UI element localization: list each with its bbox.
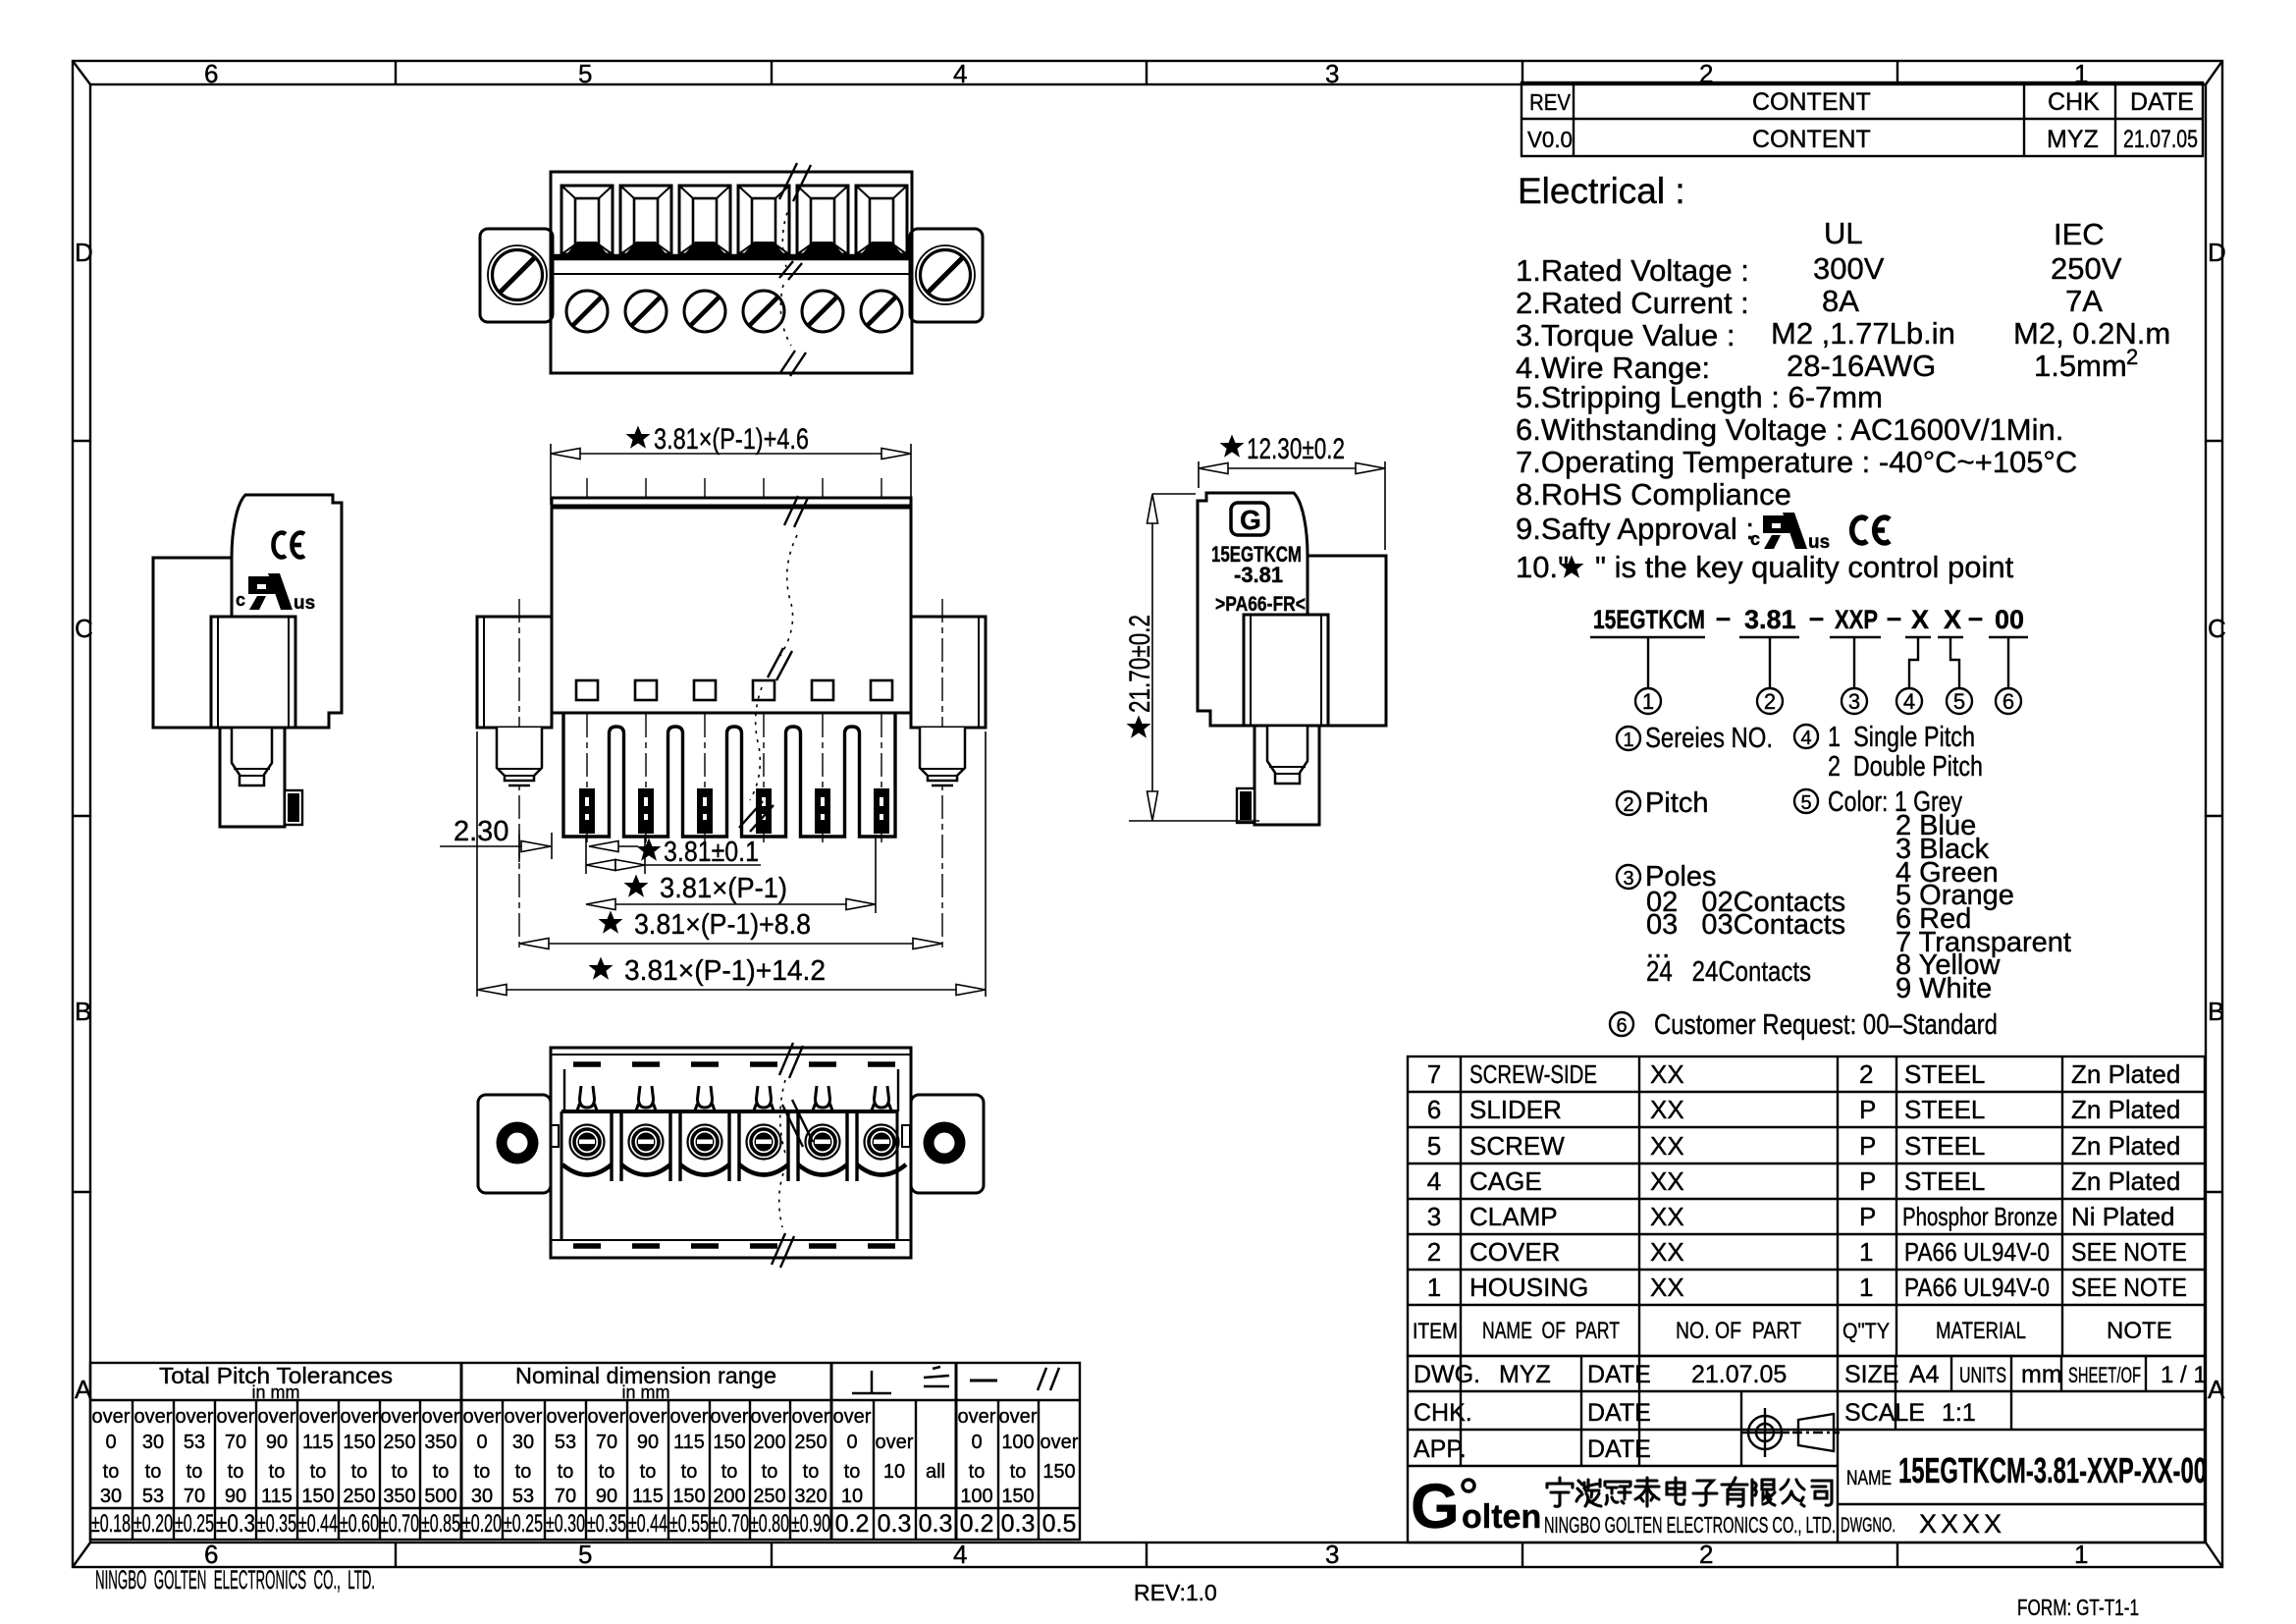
svg-text:Zn Plated: Zn Plated (2071, 1166, 2180, 1196)
svg-text:UNITS: UNITS (1959, 1363, 2006, 1387)
svg-text:21.07.05: 21.07.05 (2123, 126, 2198, 153)
svg-text:90: 90 (266, 1432, 288, 1453)
svg-text:NINGBO GOLTEN ELECTRONICS CO.,: NINGBO GOLTEN ELECTRONICS CO., LTD. (1544, 1512, 1836, 1538)
svg-text:X: X (1911, 605, 1929, 634)
svg-text:SCREW: SCREW (1469, 1131, 1565, 1161)
svg-text:200: 200 (753, 1432, 785, 1453)
svg-text:XX: XX (1650, 1237, 1684, 1267)
svg-text:over: over (711, 1406, 749, 1428)
svg-text:STEEL: STEEL (1904, 1095, 1985, 1124)
svg-text:70: 70 (184, 1486, 205, 1507)
svg-text:-3.81: -3.81 (1234, 563, 1283, 587)
svg-text:2: 2 (1699, 59, 1713, 88)
svg-text:30: 30 (512, 1432, 534, 1453)
svg-text:DWG.: DWG. (1414, 1361, 1480, 1388)
svg-text:2: 2 (1427, 1237, 1441, 1267)
svg-text:500: 500 (424, 1486, 456, 1507)
svg-text:Electrical :: Electrical : (1518, 171, 1685, 211)
svg-text:5: 5 (578, 1540, 592, 1569)
svg-text:SEE NOTE: SEE NOTE (2071, 1272, 2187, 1302)
svg-text:XX: XX (1650, 1272, 1684, 1302)
svg-text:±0.44: ±0.44 (298, 1510, 338, 1538)
svg-text:over: over (958, 1406, 996, 1428)
svg-text:0: 0 (105, 1432, 116, 1453)
svg-text:3: 3 (1325, 1540, 1339, 1569)
svg-text:3.Torque Value :: 3.Torque Value : (1516, 318, 1735, 352)
svg-text:to: to (269, 1461, 286, 1483)
svg-text:over: over (217, 1406, 255, 1428)
svg-text:90: 90 (225, 1486, 246, 1507)
svg-text:to: to (228, 1461, 244, 1483)
svg-text:6: 6 (1616, 1015, 1627, 1037)
svg-text:DATE: DATE (1587, 1399, 1651, 1427)
svg-text:over: over (547, 1406, 585, 1428)
svg-text:150: 150 (1042, 1461, 1075, 1483)
svg-text:STEEL: STEEL (1904, 1166, 1985, 1196)
svg-text:over: over (670, 1406, 709, 1428)
svg-text:0: 0 (846, 1432, 857, 1453)
svg-text:115: 115 (673, 1432, 705, 1453)
svg-text:70: 70 (596, 1432, 617, 1453)
svg-text:REV:1.0: REV:1.0 (1134, 1580, 1217, 1605)
svg-text:0.2: 0.2 (835, 1510, 870, 1538)
svg-text:0: 0 (476, 1432, 487, 1453)
svg-text:over: over (588, 1406, 626, 1428)
svg-text:–: – (1809, 603, 1824, 632)
svg-text:DATE: DATE (1587, 1435, 1651, 1463)
svg-text:–: – (1968, 603, 1983, 632)
svg-text:UL: UL (1824, 216, 1863, 250)
svg-text:P: P (1859, 1166, 1876, 1196)
svg-text:to: to (599, 1461, 615, 1483)
svg-text:to: to (474, 1461, 491, 1483)
svg-text:±0.55: ±0.55 (669, 1510, 709, 1538)
svg-text:10.": 10." (1516, 550, 1569, 584)
svg-text:2: 2 (1623, 794, 1633, 816)
svg-text:1: 1 (1623, 730, 1633, 751)
svg-text:0.3: 0.3 (919, 1510, 953, 1538)
svg-text:NAME: NAME (1846, 1467, 1892, 1489)
svg-text:to: to (640, 1461, 657, 1483)
svg-text:NO. OF PART: NO. OF PART (1676, 1318, 1801, 1344)
svg-text:B: B (2208, 997, 2224, 1026)
svg-text:X: X (1944, 605, 1961, 634)
svg-text:–: – (1887, 603, 1901, 632)
svg-text:3: 3 (1427, 1202, 1441, 1231)
svg-text:to: to (558, 1461, 574, 1483)
svg-text:6.Withstanding Voltage : AC160: 6.Withstanding Voltage : AC1600V/1Min. (1516, 412, 2063, 447)
svg-text:±0.18: ±0.18 (91, 1510, 131, 1538)
svg-text:HOUSING: HOUSING (1469, 1272, 1588, 1302)
svg-text:SCALE: SCALE (1844, 1399, 1925, 1427)
svg-text:DATE: DATE (1587, 1361, 1651, 1388)
svg-text:COVER: COVER (1469, 1237, 1560, 1267)
svg-text:70: 70 (225, 1432, 246, 1453)
svg-text:350: 350 (383, 1486, 415, 1507)
svg-text:D: D (75, 238, 93, 267)
svg-text:0.5: 0.5 (1042, 1510, 1077, 1538)
svg-text:APP.: APP. (1414, 1435, 1467, 1463)
svg-text:1.5mm: 1.5mm (2034, 349, 2127, 383)
svg-text:to: to (515, 1461, 532, 1483)
svg-text:Zn Plated: Zn Plated (2071, 1131, 2180, 1161)
svg-text:CONTENT: CONTENT (1752, 88, 1871, 116)
svg-text:115: 115 (302, 1432, 334, 1453)
svg-text:100: 100 (1001, 1432, 1034, 1453)
svg-text:±0.60: ±0.60 (340, 1510, 379, 1538)
svg-text:3.81×(P-1)+8.8: 3.81×(P-1)+8.8 (634, 909, 811, 941)
svg-text:>PA66-FR<: >PA66-FR< (1215, 593, 1306, 616)
svg-text:300V: 300V (1813, 251, 1885, 286)
svg-text:CHK: CHK (2048, 88, 2100, 116)
svg-text:±0.20: ±0.20 (462, 1510, 502, 1538)
svg-text:0: 0 (971, 1432, 982, 1453)
svg-text:" is the key quality control p: " is the key quality control point (1595, 550, 2014, 584)
svg-text:15EGTKCM: 15EGTKCM (1593, 605, 1705, 634)
svg-text:150: 150 (713, 1432, 745, 1453)
svg-text:53: 53 (184, 1432, 205, 1453)
svg-text:B: B (75, 997, 91, 1026)
svg-text:over: over (999, 1406, 1038, 1428)
svg-text:1.Rated Voltage :: 1.Rated Voltage : (1516, 253, 1749, 288)
svg-text:15EGTKCM-3.81-XXP-XX-00: 15EGTKCM-3.81-XXP-XX-00 (1898, 1450, 2207, 1490)
svg-text:over: over (381, 1406, 419, 1428)
svg-text:3.81×(P-1): 3.81×(P-1) (660, 873, 787, 904)
svg-text:P: P (1859, 1202, 1876, 1231)
svg-text:SEE NOTE: SEE NOTE (2071, 1237, 2187, 1267)
svg-text:over: over (1041, 1432, 1079, 1453)
svg-text:9 White: 9 White (1896, 973, 1992, 1004)
svg-text:100: 100 (960, 1486, 992, 1507)
svg-text:P: P (1859, 1131, 1876, 1161)
svg-text:5: 5 (1800, 792, 1811, 814)
svg-text:over: over (422, 1406, 460, 1428)
svg-text:1 / 1: 1 / 1 (2161, 1362, 2207, 1388)
svg-text:2 Double Pitch: 2 Double Pitch (1828, 751, 1983, 783)
svg-text:250: 250 (794, 1432, 827, 1453)
svg-text:1: 1 (1859, 1237, 1873, 1267)
svg-text:over: over (833, 1406, 872, 1428)
svg-text:±0.3: ±0.3 (216, 1510, 255, 1538)
svg-text:XX: XX (1650, 1059, 1684, 1089)
svg-text:over: over (258, 1406, 296, 1428)
svg-text:over: over (792, 1406, 830, 1428)
svg-text:in mm: in mm (252, 1382, 300, 1402)
svg-text:7A: 7A (2065, 284, 2103, 318)
svg-text:115: 115 (632, 1486, 664, 1507)
svg-text:–: – (1716, 603, 1731, 632)
svg-text:1: 1 (1859, 1272, 1873, 1302)
svg-text:3.81±0.1: 3.81±0.1 (664, 837, 759, 868)
svg-text:2: 2 (1859, 1059, 1873, 1089)
svg-text:250: 250 (343, 1486, 375, 1507)
svg-text:24 24Contacts: 24 24Contacts (1646, 956, 1811, 988)
svg-text:70: 70 (555, 1486, 576, 1507)
svg-text:30: 30 (471, 1486, 493, 1507)
svg-text:Zn Plated: Zn Plated (2071, 1059, 2180, 1089)
svg-text:to: to (187, 1461, 203, 1483)
svg-text:NAME OF PART: NAME OF PART (1482, 1318, 1620, 1344)
svg-text:SLIDER: SLIDER (1469, 1095, 1562, 1124)
svg-text:NINGBO GOLTEN ELECTRONICS C: NINGBO GOLTEN ELECTRONICS CO., LTD. (95, 1565, 375, 1595)
svg-text:320: 320 (794, 1486, 827, 1507)
svg-text:30: 30 (100, 1486, 122, 1507)
svg-text:±0.20: ±0.20 (133, 1510, 173, 1538)
svg-text:4: 4 (953, 59, 967, 88)
svg-text:to: to (103, 1461, 120, 1483)
svg-text:7: 7 (1427, 1059, 1441, 1089)
svg-text:2: 2 (1699, 1540, 1713, 1569)
svg-text:G: G (1240, 505, 1261, 535)
svg-text:0.2: 0.2 (960, 1510, 994, 1538)
svg-text:±0.85: ±0.85 (421, 1510, 460, 1538)
svg-text:XXP: XXP (1835, 605, 1878, 634)
svg-text:to: to (1010, 1461, 1027, 1483)
svg-text:IEC: IEC (2054, 217, 2105, 251)
svg-text:over: over (751, 1406, 789, 1428)
svg-text:53: 53 (142, 1486, 164, 1507)
svg-text:350: 350 (424, 1432, 456, 1453)
svg-text:8.RoHS Compliance: 8.RoHS Compliance (1516, 477, 1791, 512)
svg-text:olten: olten (1462, 1498, 1541, 1536)
svg-text:CONTENT: CONTENT (1752, 126, 1871, 153)
svg-text:±0.90: ±0.90 (791, 1510, 830, 1538)
svg-text:0.3: 0.3 (878, 1510, 912, 1538)
svg-text:Ni Plated: Ni Plated (2071, 1202, 2175, 1231)
svg-text:6: 6 (204, 59, 218, 88)
svg-text:Q"TY: Q"TY (1842, 1319, 1890, 1343)
svg-text:4: 4 (1800, 728, 1811, 749)
svg-text:±0.35: ±0.35 (257, 1510, 296, 1538)
svg-text:to: to (762, 1461, 778, 1483)
svg-text:90: 90 (637, 1432, 659, 1453)
svg-text:3: 3 (1325, 59, 1339, 88)
svg-text:CHK.: CHK. (1414, 1399, 1472, 1427)
svg-text:03 03Contacts: 03 03Contacts (1646, 909, 1845, 941)
svg-text:to: to (310, 1461, 327, 1483)
svg-text:3.81×(P-1)+14.2: 3.81×(P-1)+14.2 (624, 955, 826, 987)
svg-text:PA66 UL94V-0: PA66 UL94V-0 (1904, 1237, 2050, 1267)
svg-text:115: 115 (261, 1486, 293, 1507)
svg-text:Phosphor Bronze: Phosphor Bronze (1902, 1202, 2057, 1231)
svg-text:STEEL: STEEL (1904, 1059, 1985, 1089)
svg-text:SIZE: SIZE (1844, 1361, 1899, 1388)
svg-text:V0.0: V0.0 (1527, 127, 1573, 152)
svg-text:D: D (2208, 238, 2226, 267)
svg-text:to: to (145, 1461, 162, 1483)
svg-text:6: 6 (1427, 1095, 1441, 1124)
svg-text:over: over (299, 1406, 338, 1428)
svg-text:3: 3 (1623, 868, 1633, 890)
svg-text:5: 5 (578, 59, 592, 88)
svg-text:all: all (926, 1461, 945, 1483)
svg-text:Customer Request: 00–Standard: Customer Request: 00–Standard (1654, 1009, 1998, 1041)
svg-text:REV: REV (1529, 89, 1572, 115)
svg-text:±0.80: ±0.80 (750, 1510, 789, 1538)
svg-text:5: 5 (1953, 689, 1965, 714)
svg-text:XX: XX (1650, 1131, 1684, 1161)
svg-text:7.Operating Temperature : -40°: 7.Operating Temperature : -40°C~+105°C (1516, 445, 2077, 479)
svg-text:over: over (505, 1406, 543, 1428)
svg-text:1: 1 (2074, 1540, 2088, 1569)
svg-text:over: over (92, 1406, 131, 1428)
svg-text:4: 4 (953, 1540, 967, 1569)
svg-text:1: 1 (1642, 689, 1654, 714)
svg-text:150: 150 (301, 1486, 334, 1507)
svg-text:to: to (351, 1461, 368, 1483)
svg-text:XX: XX (1650, 1166, 1684, 1196)
svg-text:to: to (392, 1461, 408, 1483)
svg-text:over: over (341, 1406, 379, 1428)
svg-text:10: 10 (883, 1461, 905, 1483)
svg-text:STEEL: STEEL (1904, 1131, 1985, 1161)
svg-text:28-16AWG: 28-16AWG (1787, 349, 1936, 383)
svg-text:mm: mm (2021, 1361, 2062, 1388)
svg-text:XXXX: XXXX (1919, 1509, 2005, 1539)
svg-text:3: 3 (1848, 689, 1860, 714)
svg-text:250: 250 (753, 1486, 785, 1507)
svg-text:over: over (876, 1432, 914, 1453)
svg-text:2.Rated Current :: 2.Rated Current : (1516, 286, 1749, 320)
svg-text:CLAMP: CLAMP (1469, 1202, 1558, 1231)
svg-text:6: 6 (2002, 689, 2014, 714)
svg-text:21.07.05: 21.07.05 (1691, 1361, 1787, 1388)
svg-text:1: 1 (2074, 59, 2088, 88)
svg-text:Sereies NO.: Sereies NO. (1645, 723, 1773, 754)
svg-text:±0.25: ±0.25 (175, 1510, 214, 1538)
svg-text:to: to (681, 1461, 698, 1483)
svg-text:to: to (969, 1461, 986, 1483)
svg-text:21.70±0.2: 21.70±0.2 (1124, 615, 1156, 713)
svg-text:DWGNO.: DWGNO. (1841, 1514, 1896, 1537)
svg-text:±0.35: ±0.35 (587, 1510, 626, 1538)
svg-text:over: over (176, 1406, 214, 1428)
svg-text:150: 150 (672, 1486, 705, 1507)
svg-text:150: 150 (343, 1432, 375, 1453)
svg-text:over: over (629, 1406, 667, 1428)
svg-text:53: 53 (555, 1432, 576, 1453)
svg-text:1 Single Pitch: 1 Single Pitch (1828, 722, 1975, 753)
svg-text:A4: A4 (1909, 1361, 1940, 1388)
svg-text:±0.70: ±0.70 (380, 1510, 419, 1538)
svg-text:over: over (134, 1406, 173, 1428)
svg-text:±0.70: ±0.70 (710, 1510, 749, 1538)
svg-text:200: 200 (713, 1486, 745, 1507)
svg-text:3.81×(P-1)+4.6: 3.81×(P-1)+4.6 (654, 423, 809, 456)
svg-text:to: to (803, 1461, 820, 1483)
svg-text:MYZ: MYZ (2047, 126, 2099, 153)
svg-text:to: to (433, 1461, 450, 1483)
svg-text:XX: XX (1650, 1095, 1684, 1124)
svg-text:±0.30: ±0.30 (546, 1510, 585, 1538)
svg-text:8A: 8A (1822, 284, 1859, 318)
svg-text:A: A (2208, 1375, 2225, 1404)
svg-text:1:1: 1:1 (1942, 1399, 1976, 1427)
svg-text:2: 2 (1764, 689, 1776, 714)
svg-text:00: 00 (1995, 605, 2024, 634)
svg-text:P: P (1859, 1095, 1876, 1124)
svg-text:30: 30 (142, 1432, 164, 1453)
svg-text:in mm: in mm (622, 1382, 670, 1402)
svg-text:Zn Plated: Zn Plated (2071, 1095, 2180, 1124)
svg-text:250V: 250V (2051, 251, 2122, 286)
svg-text:SCREW-SIDE: SCREW-SIDE (1469, 1059, 1597, 1089)
svg-text:250: 250 (383, 1432, 415, 1453)
svg-text:10: 10 (841, 1486, 863, 1507)
svg-text:4: 4 (1427, 1166, 1441, 1196)
svg-text:Pitch: Pitch (1645, 787, 1708, 819)
svg-text:DATE: DATE (2130, 88, 2194, 116)
svg-text:MYZ: MYZ (1499, 1361, 1551, 1388)
svg-text:SHEET/OF: SHEET/OF (2068, 1363, 2141, 1387)
svg-text:1: 1 (1427, 1272, 1441, 1302)
svg-text:M2, 0.2N.m: M2, 0.2N.m (2013, 316, 2170, 351)
svg-text:4: 4 (1903, 689, 1915, 714)
svg-text:5: 5 (1427, 1131, 1441, 1161)
svg-text:53: 53 (512, 1486, 534, 1507)
svg-text:90: 90 (596, 1486, 617, 1507)
svg-text:150: 150 (1001, 1486, 1034, 1507)
svg-text:over: over (463, 1406, 502, 1428)
svg-text:CAGE: CAGE (1469, 1166, 1542, 1196)
svg-text:G: G (1411, 1471, 1460, 1542)
svg-text:0.3: 0.3 (1001, 1510, 1036, 1538)
svg-text:ITEM: ITEM (1413, 1319, 1458, 1343)
svg-text:5.Stripping Length : 6-7mm: 5.Stripping Length : 6-7mm (1516, 380, 1883, 414)
svg-text:XX: XX (1650, 1202, 1684, 1231)
svg-text:12.30±0.2: 12.30±0.2 (1247, 433, 1345, 465)
svg-text:MATERIAL: MATERIAL (1936, 1318, 2026, 1344)
svg-text:M2 ,1.77Lb.in: M2 ,1.77Lb.in (1771, 316, 1955, 351)
svg-text:NOTE: NOTE (2107, 1318, 2172, 1344)
svg-text:±0.25: ±0.25 (504, 1510, 543, 1538)
svg-text:±0.44: ±0.44 (628, 1510, 667, 1538)
svg-text:to: to (844, 1461, 861, 1483)
svg-text:2.30: 2.30 (454, 816, 508, 847)
svg-text:PA66 UL94V-0: PA66 UL94V-0 (1904, 1272, 2050, 1302)
svg-text:FORM: GT-T1-1: FORM: GT-T1-1 (2017, 1595, 2139, 1620)
svg-text:3.81: 3.81 (1744, 605, 1796, 634)
svg-text:9.Safty Approval :: 9.Safty Approval : (1516, 512, 1754, 546)
svg-text:C: C (2208, 614, 2226, 643)
svg-text:to: to (721, 1461, 738, 1483)
svg-text:2: 2 (2126, 345, 2138, 369)
svg-text:C: C (75, 614, 93, 643)
